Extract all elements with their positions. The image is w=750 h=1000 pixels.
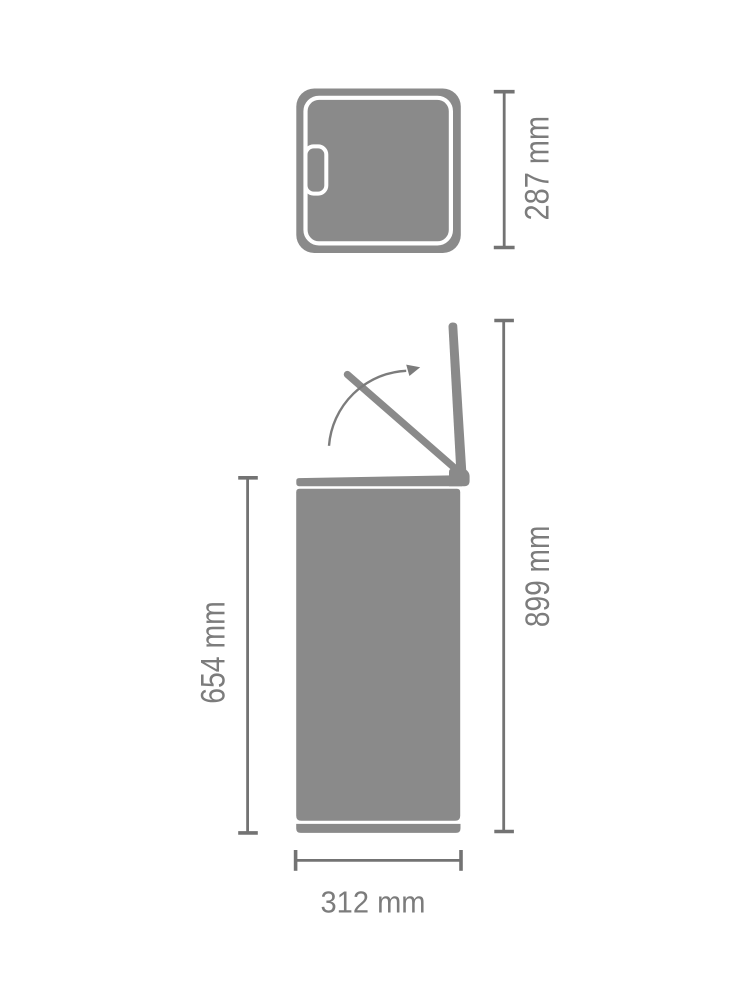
svg-text:899 mm: 899 mm xyxy=(519,526,557,628)
svg-text:287 mm: 287 mm xyxy=(519,116,557,221)
svg-text:654 mm: 654 mm xyxy=(195,601,233,704)
svg-text:312 mm: 312 mm xyxy=(321,885,426,920)
